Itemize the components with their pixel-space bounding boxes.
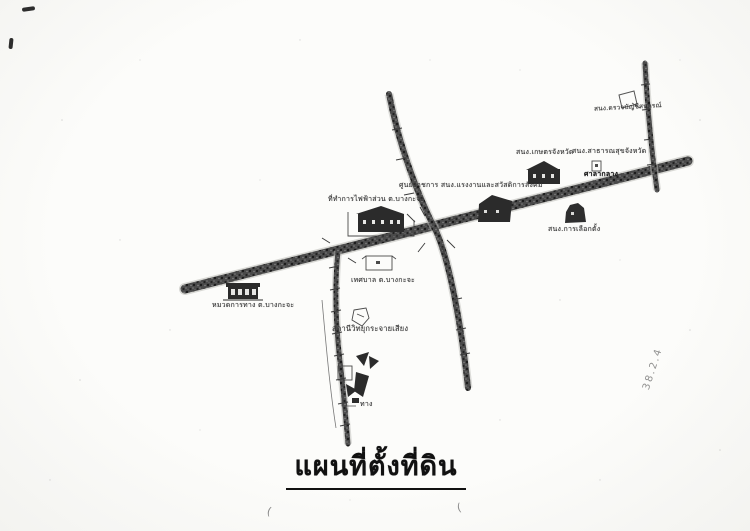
label-election-office: สนง.การเลือกตั้ง <box>548 226 600 234</box>
municipality-building <box>362 256 396 270</box>
government-center-building <box>478 195 512 222</box>
label-public-health-office: สนง.สาธารณสุขจังหวัด <box>572 148 646 156</box>
label-radio-station: สถานีวิทยุกระจายเสียง <box>332 325 408 333</box>
scanned-map-page: สนง.ตรวจบัญชีสหกรณ์ สนง.เกษตรจังหวัด สนง… <box>0 0 750 531</box>
north-road <box>389 94 468 388</box>
label-path: ทาง <box>360 401 373 409</box>
south-road <box>322 251 348 444</box>
election-office-building <box>565 203 586 223</box>
highway-office-building <box>223 283 263 300</box>
map-title: แผนที่ตั้งที่ดิน <box>286 444 466 490</box>
road-tick-marks <box>322 84 656 426</box>
label-electricity-office: ที่ทำการไฟฟ้าส่วน ต.บางกะจะ <box>328 196 425 204</box>
label-government-center: ศูนย์ราชการ สนง.แรงงานและสวัสดิการสังคม <box>399 182 543 190</box>
label-municipality: เทศบาล ต.บางกะจะ <box>351 277 415 285</box>
label-provincial-hall: ศาลากลาง <box>584 171 618 179</box>
label-highway-office: หมวดการทาง ต.บางกะจะ <box>212 302 294 310</box>
label-agriculture-office: สนง.เกษตรจังหวัด <box>516 149 574 157</box>
